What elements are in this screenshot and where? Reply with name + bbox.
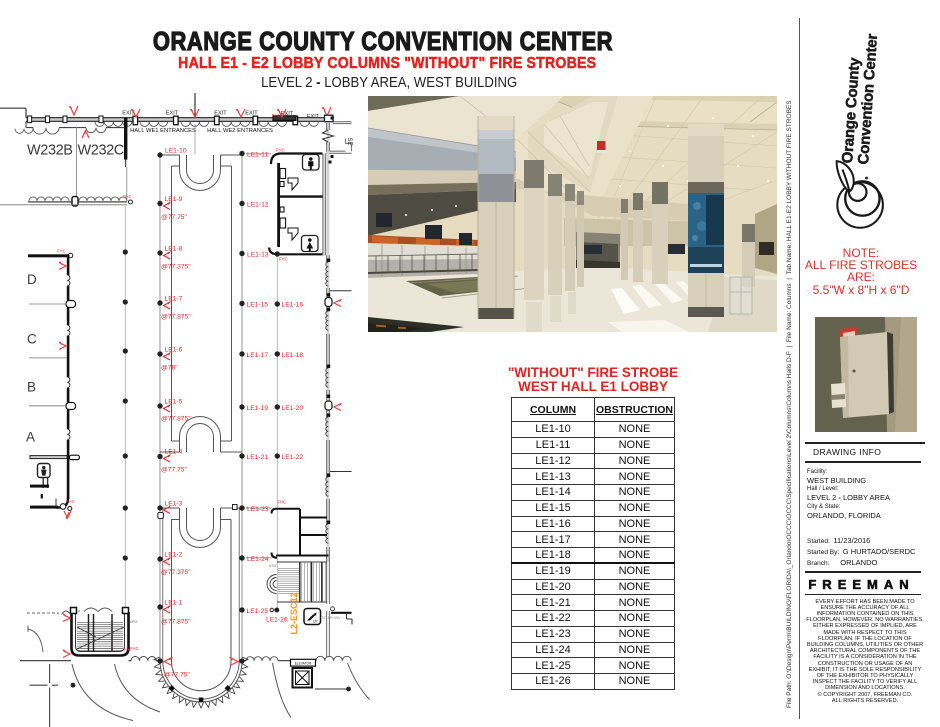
svg-text:FHC: FHC	[276, 148, 285, 153]
svg-text:LE1-12: LE1-12	[247, 202, 269, 209]
svg-text:LE1-5: LE1-5	[165, 399, 183, 406]
svg-text:@77.75": @77.75"	[164, 672, 191, 679]
svg-text:LE1-2: LE1-2	[165, 552, 183, 559]
svg-text:LE1-20: LE1-20	[282, 405, 304, 412]
svg-text:@77.875": @77.875"	[161, 314, 191, 321]
svg-text:LE1-17: LE1-17	[247, 352, 269, 359]
svg-text:LE1-3: LE1-3	[165, 501, 183, 508]
svg-text:LE1-25: LE1-25	[247, 608, 269, 615]
svg-text:LE1-15: LE1-15	[247, 302, 269, 309]
svg-text:@78": @78"	[161, 365, 178, 372]
svg-text:LE1-23: LE1-23	[247, 506, 269, 513]
svg-text:LE1-22: LE1-22	[282, 454, 304, 461]
svg-text:FHC: FHC	[130, 646, 139, 651]
svg-text:LE1-1: LE1-1	[165, 600, 183, 607]
svg-text:LE1-26: LE1-26	[266, 617, 288, 624]
svg-text:LE1-4: LE1-4	[165, 449, 183, 456]
svg-text:LE1-24: LE1-24	[247, 556, 269, 563]
svg-text:LE1-19: LE1-19	[247, 405, 269, 412]
svg-text:LE1-21: LE1-21	[247, 454, 269, 461]
svg-text:LE1-16: LE1-16	[282, 302, 304, 309]
svg-text:LE1-13: LE1-13	[247, 252, 269, 259]
svg-text:LE1-8: LE1-8	[165, 246, 183, 253]
svg-text:LE1-11: LE1-11	[247, 152, 268, 159]
svg-text:FHC: FHC	[279, 257, 288, 262]
svg-text:LE1-9: LE1-9	[165, 196, 183, 203]
svg-text:@77.375": @77.375"	[161, 569, 191, 576]
svg-text:@77.75": @77.75"	[161, 214, 188, 221]
svg-text:LE1-7: LE1-7	[165, 296, 183, 303]
svg-text:LE1-18: LE1-18	[282, 352, 304, 359]
svg-text:FHC: FHC	[278, 500, 287, 505]
svg-text:@77.375": @77.375"	[161, 264, 191, 271]
svg-text:@77.875": @77.875"	[161, 619, 191, 626]
svg-text:@77.75": @77.75"	[161, 467, 188, 474]
svg-text:@77.875": @77.875"	[161, 416, 191, 423]
svg-text:LE1-6: LE1-6	[165, 347, 183, 354]
svg-text:LE1-10: LE1-10	[165, 148, 187, 155]
